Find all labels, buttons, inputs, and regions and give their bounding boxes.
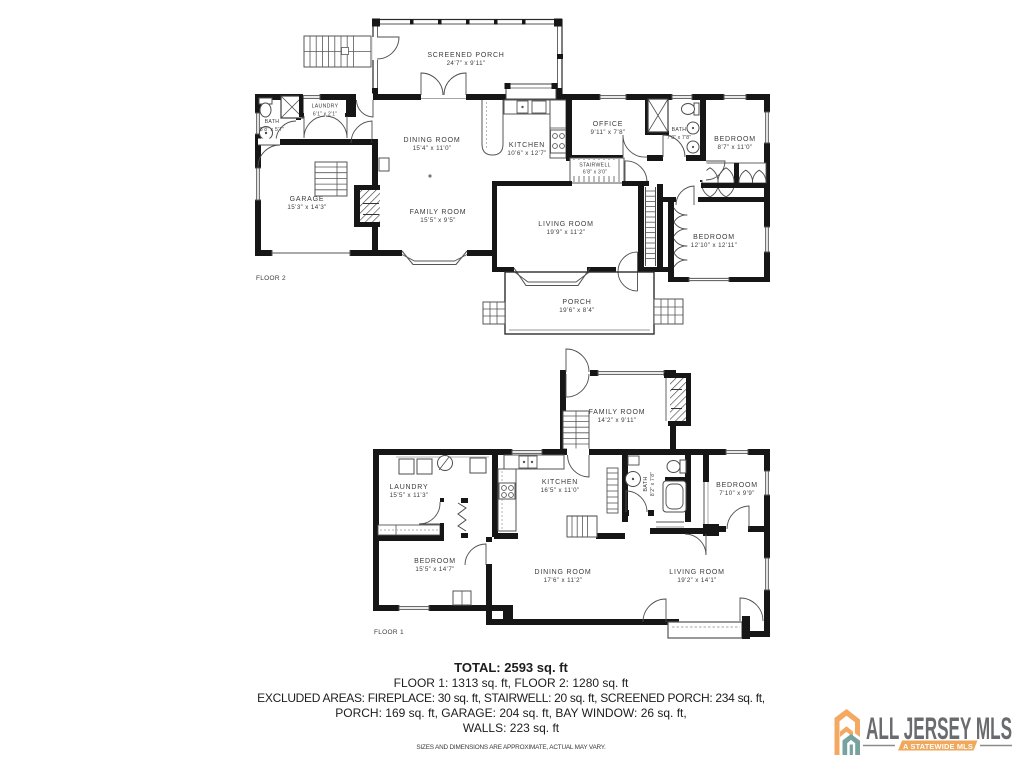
svg-text:TOTAL: 2593 sq. ft: TOTAL: 2593 sq. ft bbox=[454, 660, 568, 675]
svg-text:LAUNDRY: LAUNDRY bbox=[312, 104, 339, 110]
svg-text:BEDROOM: BEDROOM bbox=[414, 558, 456, 565]
svg-text:BATH: BATH bbox=[265, 119, 280, 125]
svg-text:KITCHEN: KITCHEN bbox=[509, 142, 545, 149]
svg-text:LIVING ROOM: LIVING ROOM bbox=[669, 569, 724, 576]
svg-text:LAUNDRY: LAUNDRY bbox=[390, 484, 429, 491]
svg-text:7’10” x 9’9”: 7’10” x 9’9” bbox=[719, 490, 754, 497]
svg-text:9’11” x 7’8”: 9’11” x 7’8” bbox=[591, 129, 626, 136]
svg-text:19’6” x 8’4”: 19’6” x 8’4” bbox=[559, 307, 594, 314]
svg-text:15’5” x 11’3”: 15’5” x 11’3” bbox=[390, 492, 429, 499]
svg-text:PORCH: PORCH bbox=[562, 299, 591, 306]
svg-text:SCREENED PORCH: SCREENED PORCH bbox=[427, 52, 504, 59]
svg-text:19’9” x 11’2”: 19’9” x 11’2” bbox=[547, 229, 586, 236]
svg-text:15’4” x 11’0”: 15’4” x 11’0” bbox=[413, 145, 452, 152]
svg-text:8’2” x 7’8”: 8’2” x 7’8” bbox=[650, 472, 656, 496]
svg-text:DINING ROOM: DINING ROOM bbox=[403, 137, 460, 144]
svg-text:17’6” x 11’2”: 17’6” x 11’2” bbox=[544, 577, 583, 584]
svg-text:FAMILY ROOM: FAMILY ROOM bbox=[410, 209, 467, 216]
svg-text:10’6” x 12’7”: 10’6” x 12’7” bbox=[507, 150, 546, 157]
svg-text:15’5” x 14’7”: 15’5” x 14’7” bbox=[415, 566, 454, 573]
svg-text:DINING ROOM: DINING ROOM bbox=[534, 569, 591, 576]
svg-text:8’7” x 11’0”: 8’7” x 11’0” bbox=[718, 144, 753, 151]
svg-text:STAIRWELL: STAIRWELL bbox=[579, 163, 611, 169]
svg-text:SIZES AND DIMENSIONS ARE APPRO: SIZES AND DIMENSIONS ARE APPROXIMATE, AC… bbox=[416, 744, 606, 751]
svg-text:FLOOR 1: 1313 sq. ft, FLOOR 2:: FLOOR 1: 1313 sq. ft, FLOOR 2: 1280 sq. … bbox=[394, 676, 629, 690]
svg-text:14’2” x 9’11”: 14’2” x 9’11” bbox=[598, 417, 637, 424]
svg-text:BEDROOM: BEDROOM bbox=[693, 234, 735, 241]
svg-text:KITCHEN: KITCHEN bbox=[542, 479, 578, 486]
svg-text:OFFICE: OFFICE bbox=[593, 121, 623, 128]
svg-text:6’8” x 3’0”: 6’8” x 3’0” bbox=[583, 170, 607, 176]
svg-text:BEDROOM: BEDROOM bbox=[714, 136, 756, 143]
svg-text:WALLS: 223 sq. ft: WALLS: 223 sq. ft bbox=[463, 721, 560, 735]
svg-text:BATH: BATH bbox=[643, 476, 649, 491]
svg-text:FAMILY ROOM: FAMILY ROOM bbox=[589, 409, 646, 416]
svg-text:FLOOR 1: FLOOR 1 bbox=[374, 629, 404, 636]
svg-text:6’1” x 2’1”: 6’1” x 2’1” bbox=[313, 112, 337, 118]
svg-text:FLOOR 2: FLOOR 2 bbox=[256, 275, 286, 282]
svg-text:5’8” x 5’7”: 5’8” x 5’7” bbox=[260, 127, 284, 133]
svg-text:24’7” x 9’11”: 24’7” x 9’11” bbox=[447, 60, 486, 67]
svg-text:EXCLUDED AREAS: FIREPLACE: 30: EXCLUDED AREAS: FIREPLACE: 30 sq. ft, ST… bbox=[257, 691, 765, 705]
svg-text:15’3” x 14’3”: 15’3” x 14’3” bbox=[287, 204, 326, 211]
svg-text:A STATEWIDE MLS: A STATEWIDE MLS bbox=[903, 742, 973, 751]
svg-text:BATH: BATH bbox=[672, 127, 687, 133]
svg-text:GARAGE: GARAGE bbox=[290, 196, 325, 203]
svg-text:16’5” x 11’0”: 16’5” x 11’0” bbox=[541, 487, 580, 494]
svg-text:PORCH: 169 sq. ft, GARAGE: 204: PORCH: 169 sq. ft, GARAGE: 204 sq. ft, B… bbox=[335, 706, 686, 720]
svg-text:LIVING ROOM: LIVING ROOM bbox=[538, 221, 593, 228]
svg-text:BEDROOM: BEDROOM bbox=[716, 482, 758, 489]
svg-text:19’2” x 14’1”: 19’2” x 14’1” bbox=[677, 577, 716, 584]
svg-text:12’10” x 12’11”: 12’10” x 12’11” bbox=[691, 242, 737, 249]
svg-text:15’5” x 9’5”: 15’5” x 9’5” bbox=[420, 217, 455, 224]
